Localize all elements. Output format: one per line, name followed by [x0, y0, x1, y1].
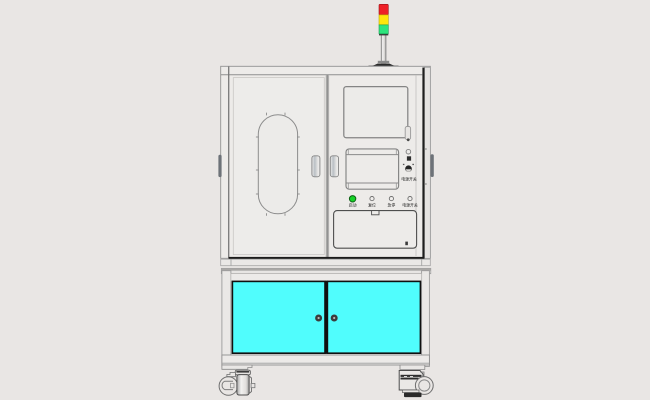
- svg-text:启动: 启动: [349, 203, 357, 208]
- svg-text:复位: 复位: [368, 203, 376, 208]
- svg-text:电源开关: 电源开关: [402, 203, 418, 208]
- svg-text:电源开关: 电源开关: [401, 176, 417, 181]
- svg-text:急停: 急停: [388, 203, 396, 208]
